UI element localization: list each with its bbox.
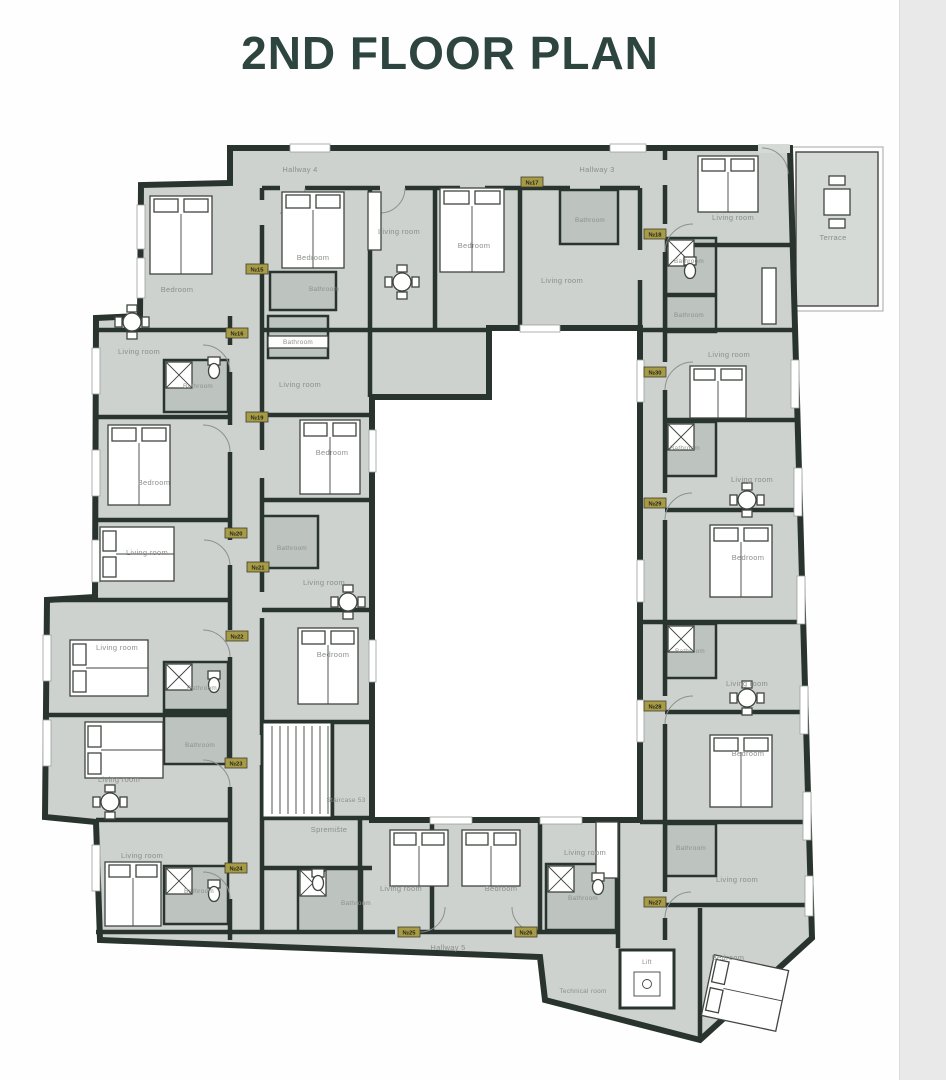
room-label: Living room	[126, 548, 168, 557]
room-label: Bathroom	[277, 545, 307, 552]
apartment-number: №18	[649, 233, 663, 239]
room-label: Bedroom	[297, 253, 330, 262]
apartment-number: №19	[251, 416, 265, 422]
room-label: Living room	[121, 851, 163, 860]
double-bed	[710, 735, 772, 807]
apartment-number-badge: №30	[644, 367, 666, 377]
apartment-number: №16	[231, 332, 245, 338]
double-bed	[300, 420, 360, 494]
room-label: Terrace	[819, 233, 846, 242]
room-label: Living room	[712, 213, 754, 222]
toilet	[208, 357, 220, 379]
room-label: Staircase 53	[326, 797, 365, 804]
room-label: Bedroom	[138, 478, 171, 487]
room-label: Spremište	[311, 825, 347, 834]
toilet	[592, 873, 604, 895]
apartment-number-badge: №22	[226, 631, 248, 641]
toilet	[312, 869, 324, 891]
apartment-number-badge: №16	[226, 328, 248, 338]
double-bed	[85, 722, 163, 778]
apartment-number-badge: №23	[225, 758, 247, 768]
room-label: Bathroom	[309, 286, 339, 293]
apartment-number-badge: №19	[246, 412, 268, 422]
apartment-number: №21	[252, 566, 266, 572]
room-label: Bathroom	[575, 217, 605, 224]
shower	[548, 866, 574, 892]
apartment-number: №17	[526, 181, 539, 187]
room-label: Bedroom	[458, 241, 491, 250]
apartment-number: №23	[230, 762, 244, 768]
room-label: Bedroom	[732, 749, 765, 758]
double-bed	[108, 425, 170, 505]
room-label: Bathroom	[674, 312, 704, 319]
apartment-number-badge: №17	[521, 177, 543, 187]
room-label: Living room	[564, 848, 606, 857]
room-label: Lift	[642, 959, 652, 966]
room-label: Bedroom	[316, 448, 349, 457]
double-bed	[440, 188, 504, 272]
room-label: Bathroom	[183, 383, 213, 390]
apartment-number-badge: №20	[225, 528, 247, 538]
room-label: Bedroom	[485, 884, 518, 893]
room-label: Bathroom	[187, 685, 217, 692]
double-bed	[105, 862, 161, 926]
apartment-number-badge: №29	[644, 498, 666, 508]
double-bed	[462, 830, 520, 886]
apartment-number: №15	[251, 268, 265, 274]
apartment-number-badge: №26	[515, 927, 537, 937]
room-label: Bathroom	[676, 845, 706, 852]
apartment-number-badge: №15	[246, 264, 268, 274]
room-label: Hallway 4	[282, 165, 317, 174]
double-bed	[390, 830, 448, 886]
apartment-number: №24	[230, 867, 244, 873]
room-label: Living room	[708, 350, 750, 359]
apartment-number-badge: №18	[644, 229, 666, 239]
terrace	[791, 147, 883, 311]
room-label: Living room	[98, 775, 140, 784]
room-label: Bathroom	[184, 888, 214, 895]
apartment-number-badge: №24	[225, 863, 247, 873]
room-label: Living room	[541, 276, 583, 285]
apartment-number-badge: №25	[398, 927, 420, 937]
floor-plan: Hallway 4 Hallway 3 Bedroom Bathroom Bat…	[0, 0, 946, 1080]
room-label: Bathroom	[568, 895, 598, 902]
double-bed	[298, 628, 358, 704]
room-label: Living room	[303, 578, 345, 587]
apartment-number: №26	[520, 931, 534, 937]
apartment-number: №27	[649, 901, 662, 907]
apartment-number-badge: №28	[644, 701, 666, 711]
apartment-number: №30	[649, 371, 662, 377]
staircase	[262, 722, 332, 818]
room-label: Bedroom	[161, 285, 194, 294]
room-label: Bathroom	[674, 258, 704, 265]
apartment-number-badge: №27	[644, 897, 666, 907]
double-bed	[690, 366, 746, 418]
apartment-number: №25	[403, 931, 417, 937]
room-label: Bedroom	[317, 650, 350, 659]
room-label: Bathroom	[185, 742, 215, 749]
sofa	[762, 268, 776, 324]
room-label: Living room	[118, 347, 160, 356]
double-bed	[150, 196, 212, 274]
room-label: Living room	[380, 884, 422, 893]
apartment-number-badge: №21	[247, 562, 269, 572]
room-label: Living room	[279, 380, 321, 389]
room-label: Living room	[726, 679, 768, 688]
room-label: Bathroom	[675, 648, 705, 655]
apartment-number: №29	[649, 502, 663, 508]
room-label: Living room	[716, 875, 758, 884]
room-label: Living room	[96, 643, 138, 652]
courtyard	[372, 328, 640, 820]
room-label: Bathroom	[670, 445, 700, 452]
apartment-number: №22	[231, 635, 244, 641]
room-label: Living room	[731, 475, 773, 484]
room-label: Bathroom	[283, 339, 313, 346]
apartment-number: №28	[649, 705, 663, 711]
room-label: Technical room	[559, 988, 606, 995]
double-bed	[698, 156, 758, 212]
apartment-number: №20	[230, 532, 243, 538]
sofa	[368, 192, 381, 250]
room-label: Bedroom	[732, 553, 765, 562]
room-label: Bedroom	[712, 953, 745, 962]
room-label: Hallway 3	[579, 165, 614, 174]
room-label: Bathroom	[341, 900, 371, 907]
room-label: Living room	[378, 227, 420, 236]
room-label: Hallway 5	[430, 943, 465, 952]
floor-plan-page: 2ND FLOOR PLAN	[0, 0, 946, 1080]
